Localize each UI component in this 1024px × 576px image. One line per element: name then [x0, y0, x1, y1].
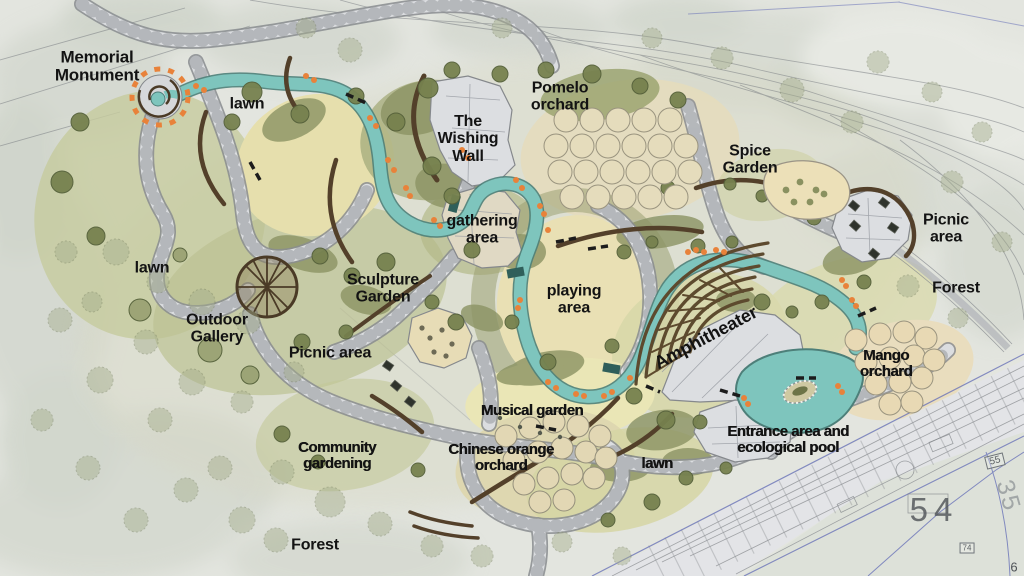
parcel-number-6: 6 — [1010, 560, 1017, 575]
label-forest-sw: Forest — [291, 536, 339, 553]
label-pomelo-orchard: Pomelo orchard — [531, 80, 589, 115]
label-lawn-nw: lawn — [230, 95, 265, 112]
label-lawn-w: lawn — [135, 259, 170, 276]
label-memorial-monument: Memorial Monument — [55, 49, 139, 86]
label-picnic-area-ne: Picnic area — [907, 212, 985, 247]
label-playing-area: playing area — [547, 283, 602, 318]
label-gathering-area: gathering area — [446, 213, 517, 248]
site-plan: Memorial Monument lawn Pomelo orchard Th… — [0, 0, 1024, 576]
label-mango-orchard: Mango orchard — [860, 348, 912, 380]
parcel-number-54: 54 — [910, 491, 959, 529]
label-entrance-pool: Entrance area and ecological pool — [727, 424, 849, 456]
site-plan-artwork — [0, 0, 1024, 576]
label-outdoor-gallery: Outdoor Gallery — [186, 312, 248, 347]
parcel-number-74: 74 — [960, 543, 975, 554]
outdoor-gallery-wheel — [237, 257, 297, 317]
label-chinese-orange-orchard: Chinese orange orchard — [448, 442, 554, 474]
label-spice-garden: Spice Garden — [723, 143, 778, 178]
label-wishing-wall: The Wishing Wall — [438, 113, 499, 165]
label-lawn-s: lawn — [641, 456, 672, 472]
label-sculpture-garden: Sculpture Garden — [347, 272, 419, 307]
label-musical-garden: Musical garden — [481, 403, 583, 419]
label-picnic-area-w: Picnic area — [289, 344, 371, 361]
label-forest-e: Forest — [932, 279, 980, 296]
label-community-gardening: Community gardening — [298, 440, 376, 472]
